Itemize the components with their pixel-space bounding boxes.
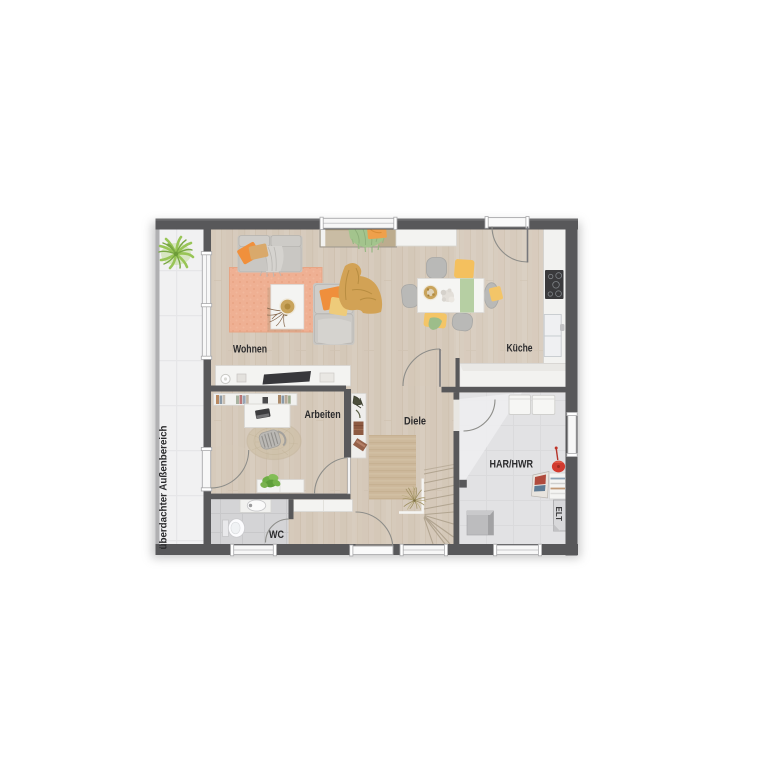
svg-text:Küche: Küche	[507, 343, 533, 355]
svg-text:WC: WC	[269, 529, 284, 541]
svg-text:überdachter Außenbereich: überdachter Außenbereich	[159, 425, 170, 549]
svg-text:ELT: ELT	[554, 507, 563, 522]
svg-text:Wohnen: Wohnen	[233, 343, 267, 355]
svg-text:Arbeiten: Arbeiten	[305, 409, 341, 421]
svg-text:HAR/HWR: HAR/HWR	[490, 459, 534, 471]
svg-text:Diele: Diele	[404, 415, 426, 427]
